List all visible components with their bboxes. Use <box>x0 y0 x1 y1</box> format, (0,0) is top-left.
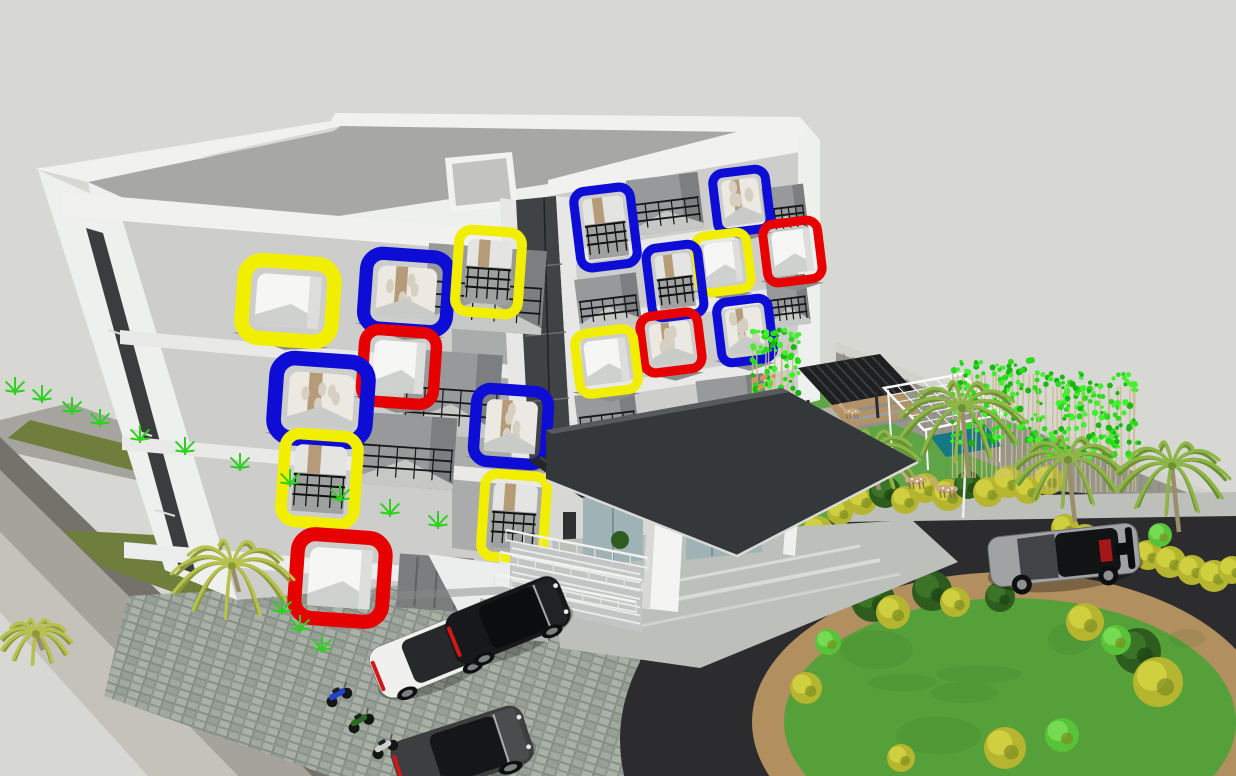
architectural-render <box>0 0 1236 776</box>
render-stage <box>0 0 1236 776</box>
balcony-opening <box>574 272 642 329</box>
